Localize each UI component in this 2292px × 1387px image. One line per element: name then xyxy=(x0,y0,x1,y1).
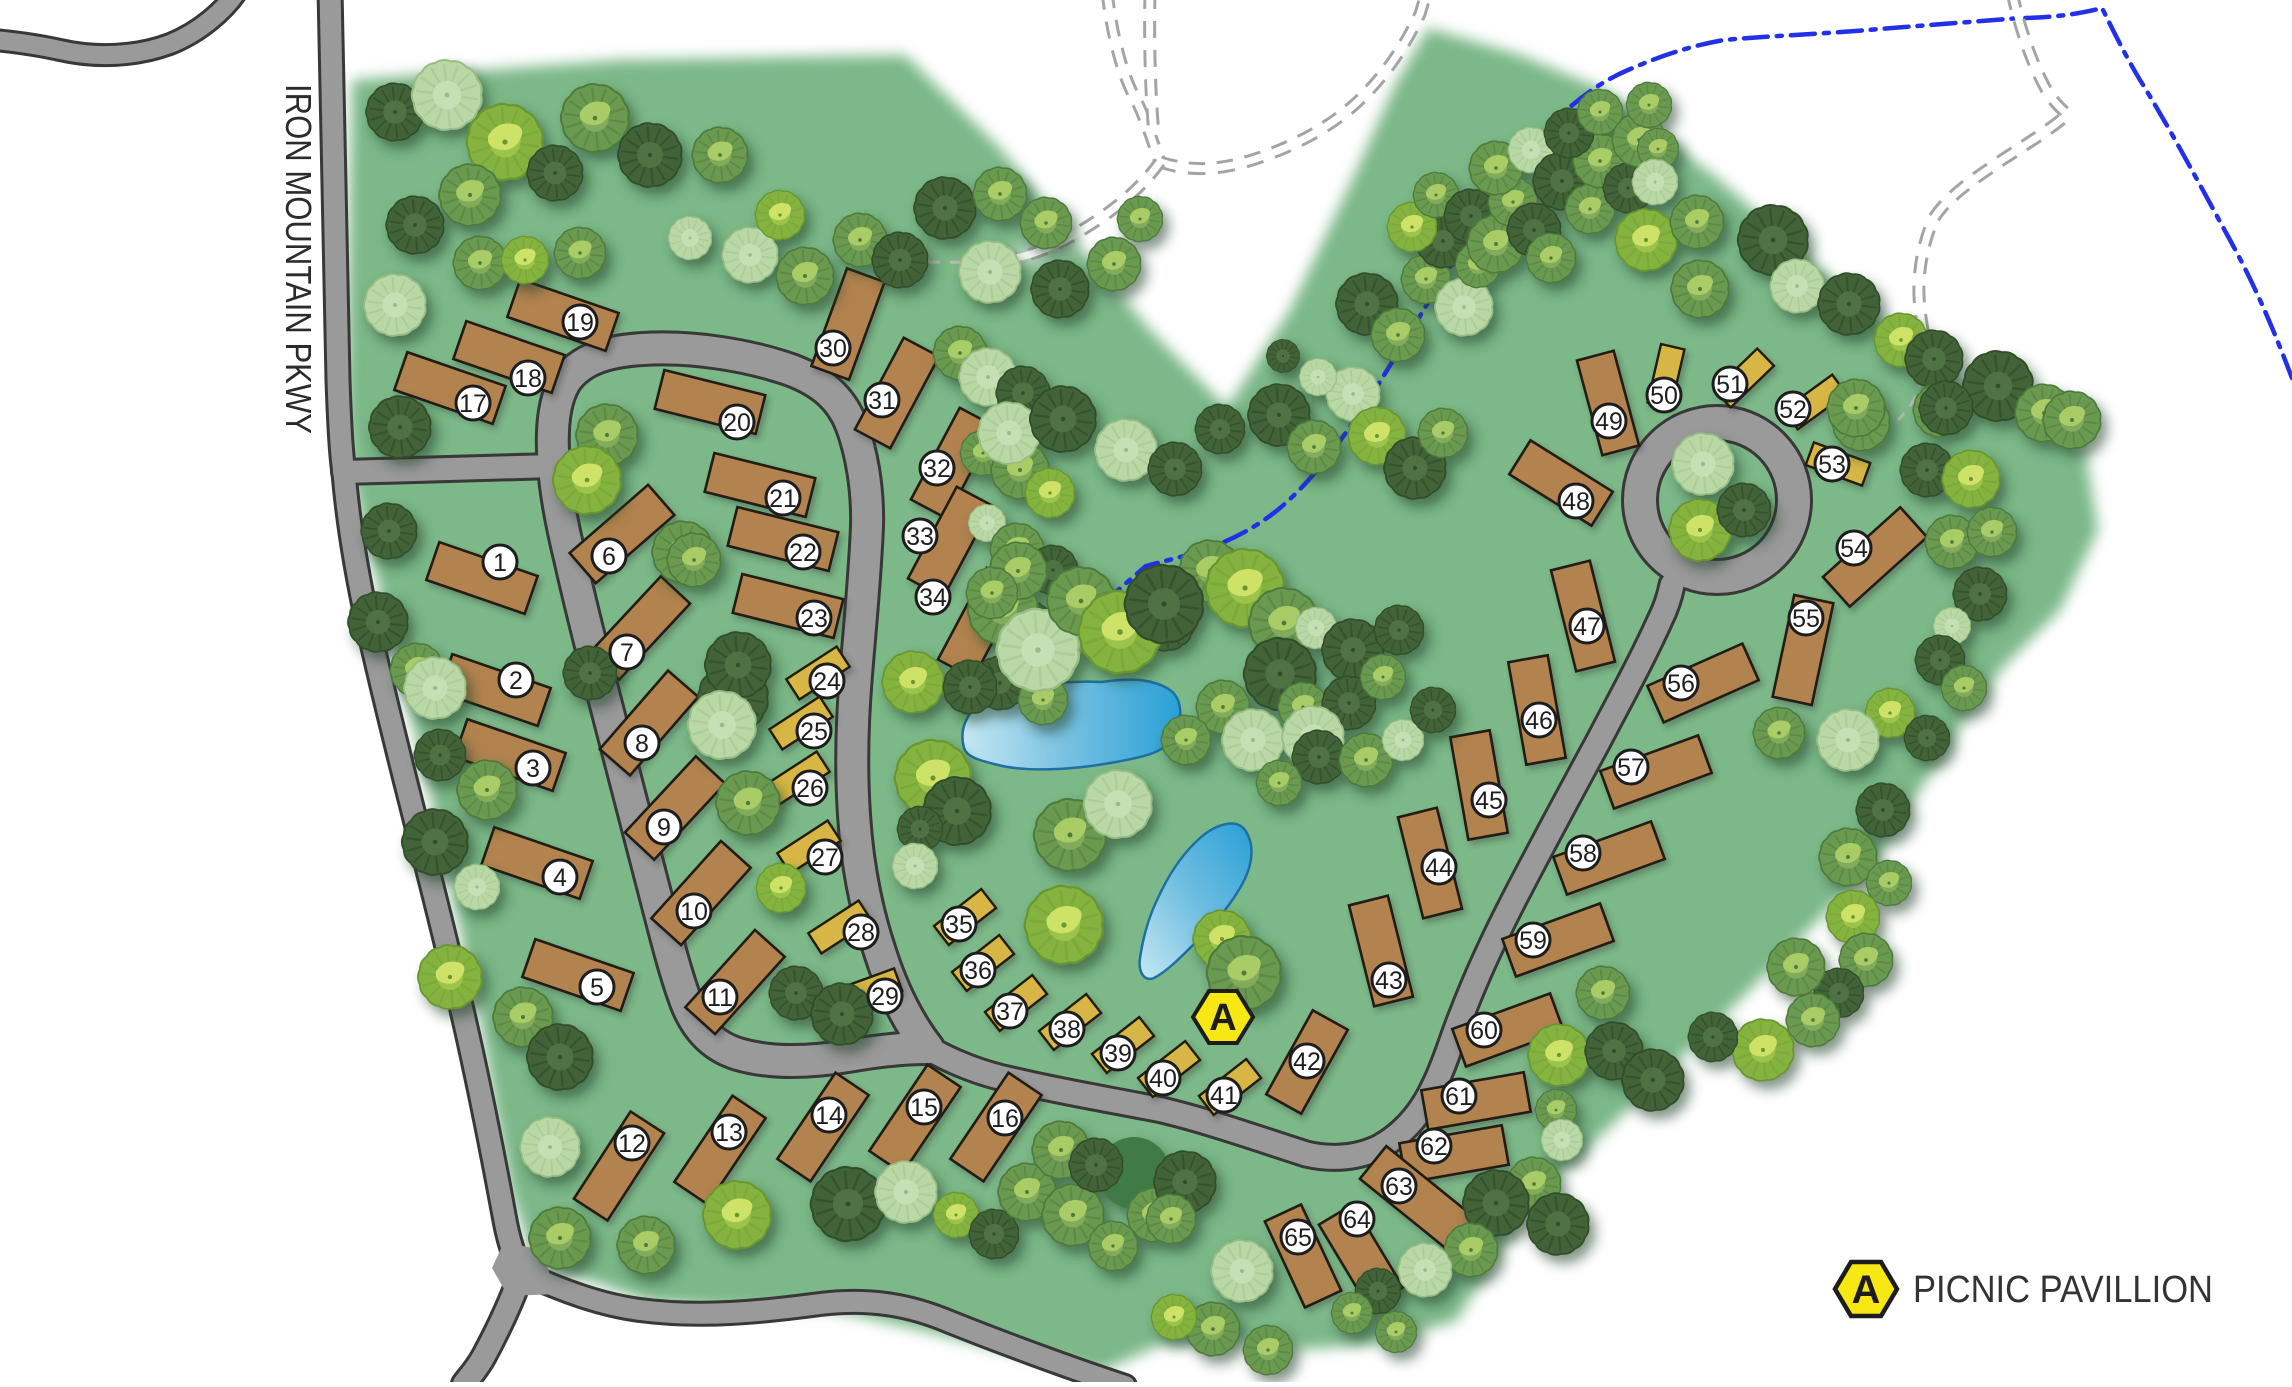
svg-text:42: 42 xyxy=(1293,1048,1321,1076)
svg-text:36: 36 xyxy=(964,957,992,985)
svg-text:23: 23 xyxy=(800,605,828,633)
svg-text:19: 19 xyxy=(566,309,594,337)
svg-text:52: 52 xyxy=(1779,396,1807,424)
svg-text:14: 14 xyxy=(815,1102,843,1130)
svg-text:62: 62 xyxy=(1420,1133,1448,1161)
svg-text:2: 2 xyxy=(509,667,523,695)
svg-text:56: 56 xyxy=(1667,670,1695,698)
svg-text:58: 58 xyxy=(1569,840,1597,868)
svg-text:40: 40 xyxy=(1149,1065,1177,1093)
svg-text:46: 46 xyxy=(1525,707,1553,735)
svg-text:43: 43 xyxy=(1375,967,1403,995)
svg-text:7: 7 xyxy=(620,639,634,667)
svg-text:32: 32 xyxy=(923,455,951,483)
svg-text:A: A xyxy=(1209,997,1236,1039)
svg-text:10: 10 xyxy=(680,898,708,926)
svg-text:55: 55 xyxy=(1792,605,1820,633)
svg-text:39: 39 xyxy=(1104,1040,1132,1068)
svg-text:30: 30 xyxy=(819,335,847,363)
svg-text:1: 1 xyxy=(493,549,507,577)
svg-text:34: 34 xyxy=(919,584,947,612)
svg-text:A: A xyxy=(1852,1268,1881,1312)
svg-text:5: 5 xyxy=(590,974,604,1002)
svg-text:51: 51 xyxy=(1716,371,1744,399)
svg-text:8: 8 xyxy=(635,730,649,758)
svg-text:17: 17 xyxy=(459,390,487,418)
svg-text:4: 4 xyxy=(553,864,567,892)
svg-text:16: 16 xyxy=(991,1105,1019,1133)
svg-text:6: 6 xyxy=(602,543,616,571)
svg-text:20: 20 xyxy=(723,409,751,437)
svg-text:13: 13 xyxy=(715,1119,743,1147)
svg-text:50: 50 xyxy=(1650,382,1678,410)
svg-text:49: 49 xyxy=(1595,408,1623,436)
svg-text:37: 37 xyxy=(996,998,1024,1026)
svg-text:35: 35 xyxy=(945,911,973,939)
svg-text:9: 9 xyxy=(657,814,671,842)
svg-text:53: 53 xyxy=(1818,451,1846,479)
svg-text:38: 38 xyxy=(1053,1016,1081,1044)
svg-text:48: 48 xyxy=(1562,488,1590,516)
svg-text:57: 57 xyxy=(1617,754,1645,782)
svg-text:54: 54 xyxy=(1840,535,1868,563)
svg-text:11: 11 xyxy=(707,984,733,1012)
svg-text:63: 63 xyxy=(1385,1173,1413,1201)
svg-text:18: 18 xyxy=(514,365,542,393)
svg-text:22: 22 xyxy=(789,539,817,567)
svg-text:60: 60 xyxy=(1470,1017,1498,1045)
svg-text:24: 24 xyxy=(813,668,841,696)
svg-text:45: 45 xyxy=(1475,787,1503,815)
svg-text:59: 59 xyxy=(1519,927,1547,955)
svg-text:33: 33 xyxy=(906,523,934,551)
svg-text:15: 15 xyxy=(910,1094,938,1122)
svg-text:3: 3 xyxy=(526,755,540,783)
svg-text:44: 44 xyxy=(1425,854,1453,882)
svg-text:25: 25 xyxy=(800,718,828,746)
svg-text:IRON MOUNTAIN PKWY: IRON MOUNTAIN PKWY xyxy=(278,84,319,434)
svg-text:27: 27 xyxy=(811,844,839,872)
svg-text:26: 26 xyxy=(796,775,824,803)
svg-text:47: 47 xyxy=(1573,613,1601,641)
svg-text:64: 64 xyxy=(1343,1206,1371,1234)
svg-text:28: 28 xyxy=(847,919,875,947)
svg-text:PICNIC PAVILLION: PICNIC PAVILLION xyxy=(1913,1269,2213,1311)
svg-text:31: 31 xyxy=(868,387,896,415)
svg-text:65: 65 xyxy=(1284,1224,1312,1252)
svg-text:21: 21 xyxy=(769,485,797,513)
svg-text:12: 12 xyxy=(618,1130,646,1158)
svg-text:29: 29 xyxy=(871,983,899,1011)
svg-text:61: 61 xyxy=(1445,1083,1473,1111)
svg-text:41: 41 xyxy=(1210,1082,1238,1110)
